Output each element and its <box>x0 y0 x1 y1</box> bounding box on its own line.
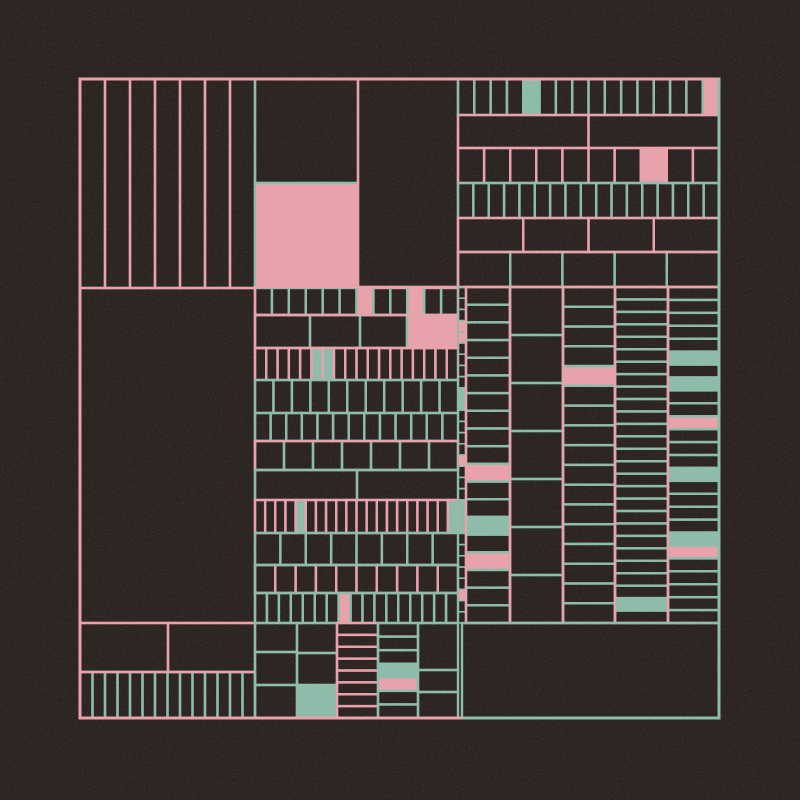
bottom-mid-col-4 <box>378 623 418 718</box>
generative-artwork-canvas <box>0 0 800 800</box>
art-stage <box>0 0 800 800</box>
mid-row-8 <box>255 500 458 533</box>
